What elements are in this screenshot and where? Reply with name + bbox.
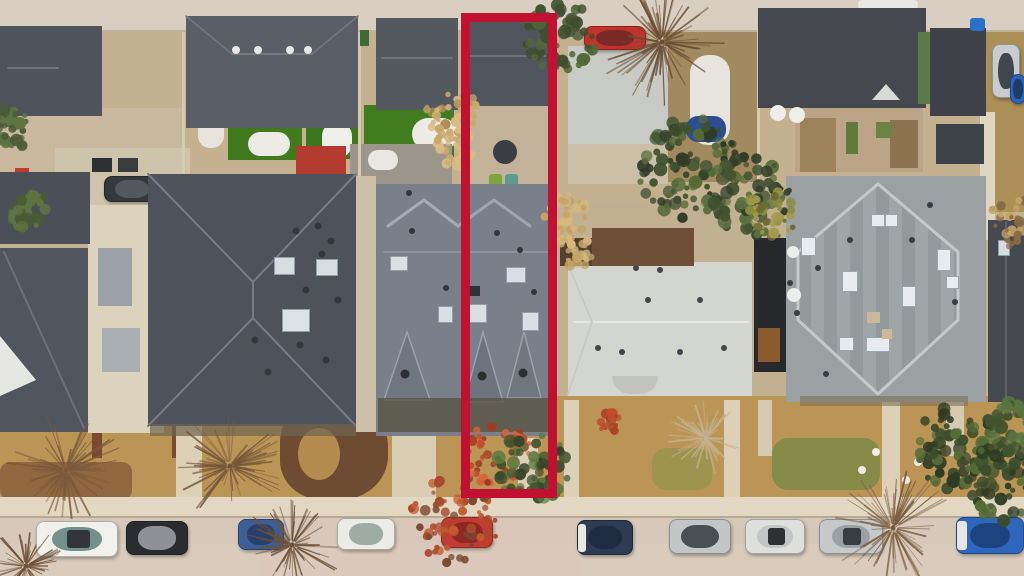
green-patch-2 [652, 448, 712, 490]
blue-bin [970, 18, 985, 31]
courtyard-bed-1 [800, 118, 836, 172]
roof-left-upper [0, 172, 90, 244]
parked-car-black-suv-glass [138, 526, 175, 549]
parked-dark-car-lane-glass [115, 180, 149, 198]
shed-roof-2 [936, 124, 984, 164]
h1-skylight-2 [316, 259, 338, 276]
parked-car-white-suv [36, 521, 118, 557]
parked-car-blue-suv [956, 517, 1024, 554]
h4-skylight-9 [866, 337, 890, 352]
parked-car-black-suv [126, 521, 188, 555]
aerial-photo-canvas [0, 0, 1024, 576]
blue-car-right-glass [1013, 79, 1023, 99]
house-3-roof [568, 262, 752, 396]
garage-roof-1 [186, 16, 358, 128]
parked-car-blue-suv-accent [957, 521, 967, 551]
wall-window-2 [102, 328, 140, 372]
deck-snow [368, 150, 398, 170]
h1-eave-shadow [150, 424, 356, 436]
trash-bin-2 [118, 158, 138, 172]
drive-pad-light [568, 144, 668, 184]
parked-car-white-suv-sunroof [67, 530, 90, 547]
shed-roof-1 [930, 28, 986, 116]
parked-car-silver-suv [669, 519, 731, 554]
walkway-6 [758, 400, 772, 456]
shed-green-strip [918, 32, 930, 104]
trampoline [686, 116, 726, 142]
wood-deck [592, 228, 694, 266]
h4-skylight-6 [937, 249, 951, 271]
green-patch-1 [772, 438, 880, 490]
red-car-alley-glass [596, 30, 633, 46]
h4-vent-box-2 [882, 329, 892, 339]
dark-roof-topright [758, 8, 926, 108]
trash-bin-1 [92, 158, 112, 172]
red-car-alley [584, 26, 646, 50]
house-1-roof [148, 174, 356, 426]
h2-skylight-1 [390, 256, 408, 271]
parked-car-blue-suv-glass [970, 523, 1011, 548]
h4-skylight-2 [842, 271, 858, 292]
h1-skylight-3 [282, 309, 310, 332]
parked-car-silver-van-sunroof [843, 528, 861, 545]
planter-1 [846, 122, 858, 154]
roof-left-lower [0, 248, 88, 432]
parked-car-white-sunroof-sunroof [768, 528, 785, 545]
parked-car-navy-suv-accent [578, 524, 586, 552]
h4-skylight-8 [839, 337, 854, 351]
parked-car-silver-suv-glass [681, 525, 718, 549]
h5-skylight [998, 240, 1010, 256]
h1-skylight-1 [274, 257, 295, 275]
garage-roof-2 [376, 18, 458, 110]
h2-skylight-2 [438, 306, 453, 323]
walk-between-houses [356, 176, 376, 432]
planter-2 [876, 122, 892, 138]
h4-skylight-1 [801, 237, 816, 256]
walkway-8 [946, 400, 964, 456]
parked-car-red [441, 517, 493, 548]
sidewalk [0, 497, 1024, 518]
rust-door-strip [758, 328, 780, 362]
green-bin [360, 30, 369, 46]
walkway-5 [724, 400, 740, 512]
walkway-4 [564, 400, 579, 512]
h4-skylight-4 [885, 214, 898, 227]
parked-car-white-sedan [337, 518, 395, 550]
fence-2 [358, 32, 361, 200]
blue-car-right [1010, 74, 1024, 104]
wall-window-1 [98, 248, 132, 306]
street-pink-tint [260, 518, 580, 576]
parked-car-navy-suv-glass [588, 526, 622, 550]
parked-car-red-glass [451, 522, 482, 543]
h4-vent-box-1 [867, 312, 880, 323]
courtyard-bed-2 [890, 120, 918, 168]
parked-car-white-sedan-glass [349, 523, 384, 545]
snow-patch-1 [248, 132, 290, 156]
garage-roof-light [568, 46, 668, 144]
h4-eave-shadow [800, 396, 968, 406]
property-boundary-outline [461, 13, 557, 498]
h4-skylight-5 [902, 286, 916, 307]
parked-car-navy-suv [577, 520, 633, 555]
walkway-7 [882, 400, 900, 512]
h4-skylight-3 [871, 214, 885, 227]
deck-dark-corner [560, 238, 592, 266]
parked-car-silver-van [819, 519, 883, 554]
parked-car-blue-sedan [238, 519, 284, 550]
garage-roof-left [0, 26, 102, 116]
parked-car-blue-sedan-glass [247, 524, 275, 545]
h4-skylight-7 [946, 276, 959, 289]
leaf-litter [0, 462, 132, 500]
parked-car-white-sunroof [745, 519, 805, 554]
